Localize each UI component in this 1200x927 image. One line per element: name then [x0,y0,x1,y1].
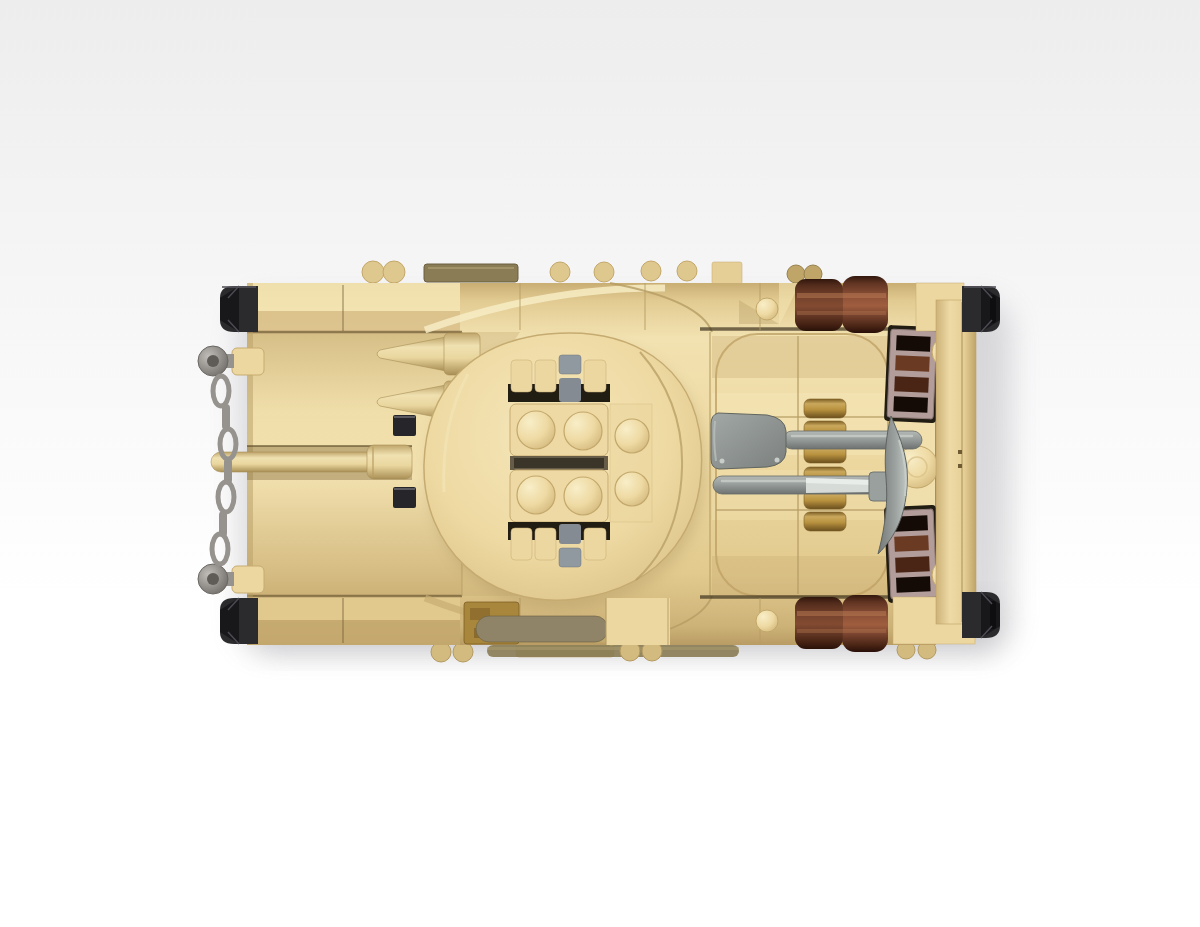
edge-stud [594,262,614,282]
chain-mount [232,348,264,375]
vent-grille-top [884,325,940,423]
lego-vehicle-top-view [0,0,1200,927]
exhaust-log-bottom [795,595,888,652]
grab-bar [476,616,608,642]
edge-stud [383,261,405,283]
render-stage [0,0,1200,927]
hatch-stud [517,476,555,514]
edge-block [712,262,742,284]
edge-stud [677,261,697,281]
exhaust-log-top [795,276,888,333]
round-stud [615,472,649,506]
olive-rod [487,645,739,657]
corner-guard-front-top [220,286,258,332]
olive-tile [424,264,518,282]
hull-patch [606,598,670,645]
hatch-stud [564,412,602,450]
deck-stud [756,610,778,632]
hinge-pin [559,378,581,402]
chain-mount [232,566,264,593]
hinge-pin [559,548,581,567]
edge-stud [550,262,570,282]
edge-stud [641,261,661,281]
edge-stud [362,261,384,283]
hinge-pin [559,524,581,544]
corner-guard-rear-bottom [962,592,1000,638]
round-stud [615,419,649,453]
corner-guard-front-bottom [220,598,258,644]
corner-guard-rear-top [962,286,1000,332]
hatch-stud [564,477,602,515]
turret [424,333,706,608]
hatch-stud [517,411,555,449]
deck-stud [756,298,778,320]
hinge-pin [559,355,581,374]
end-plate [936,300,976,624]
